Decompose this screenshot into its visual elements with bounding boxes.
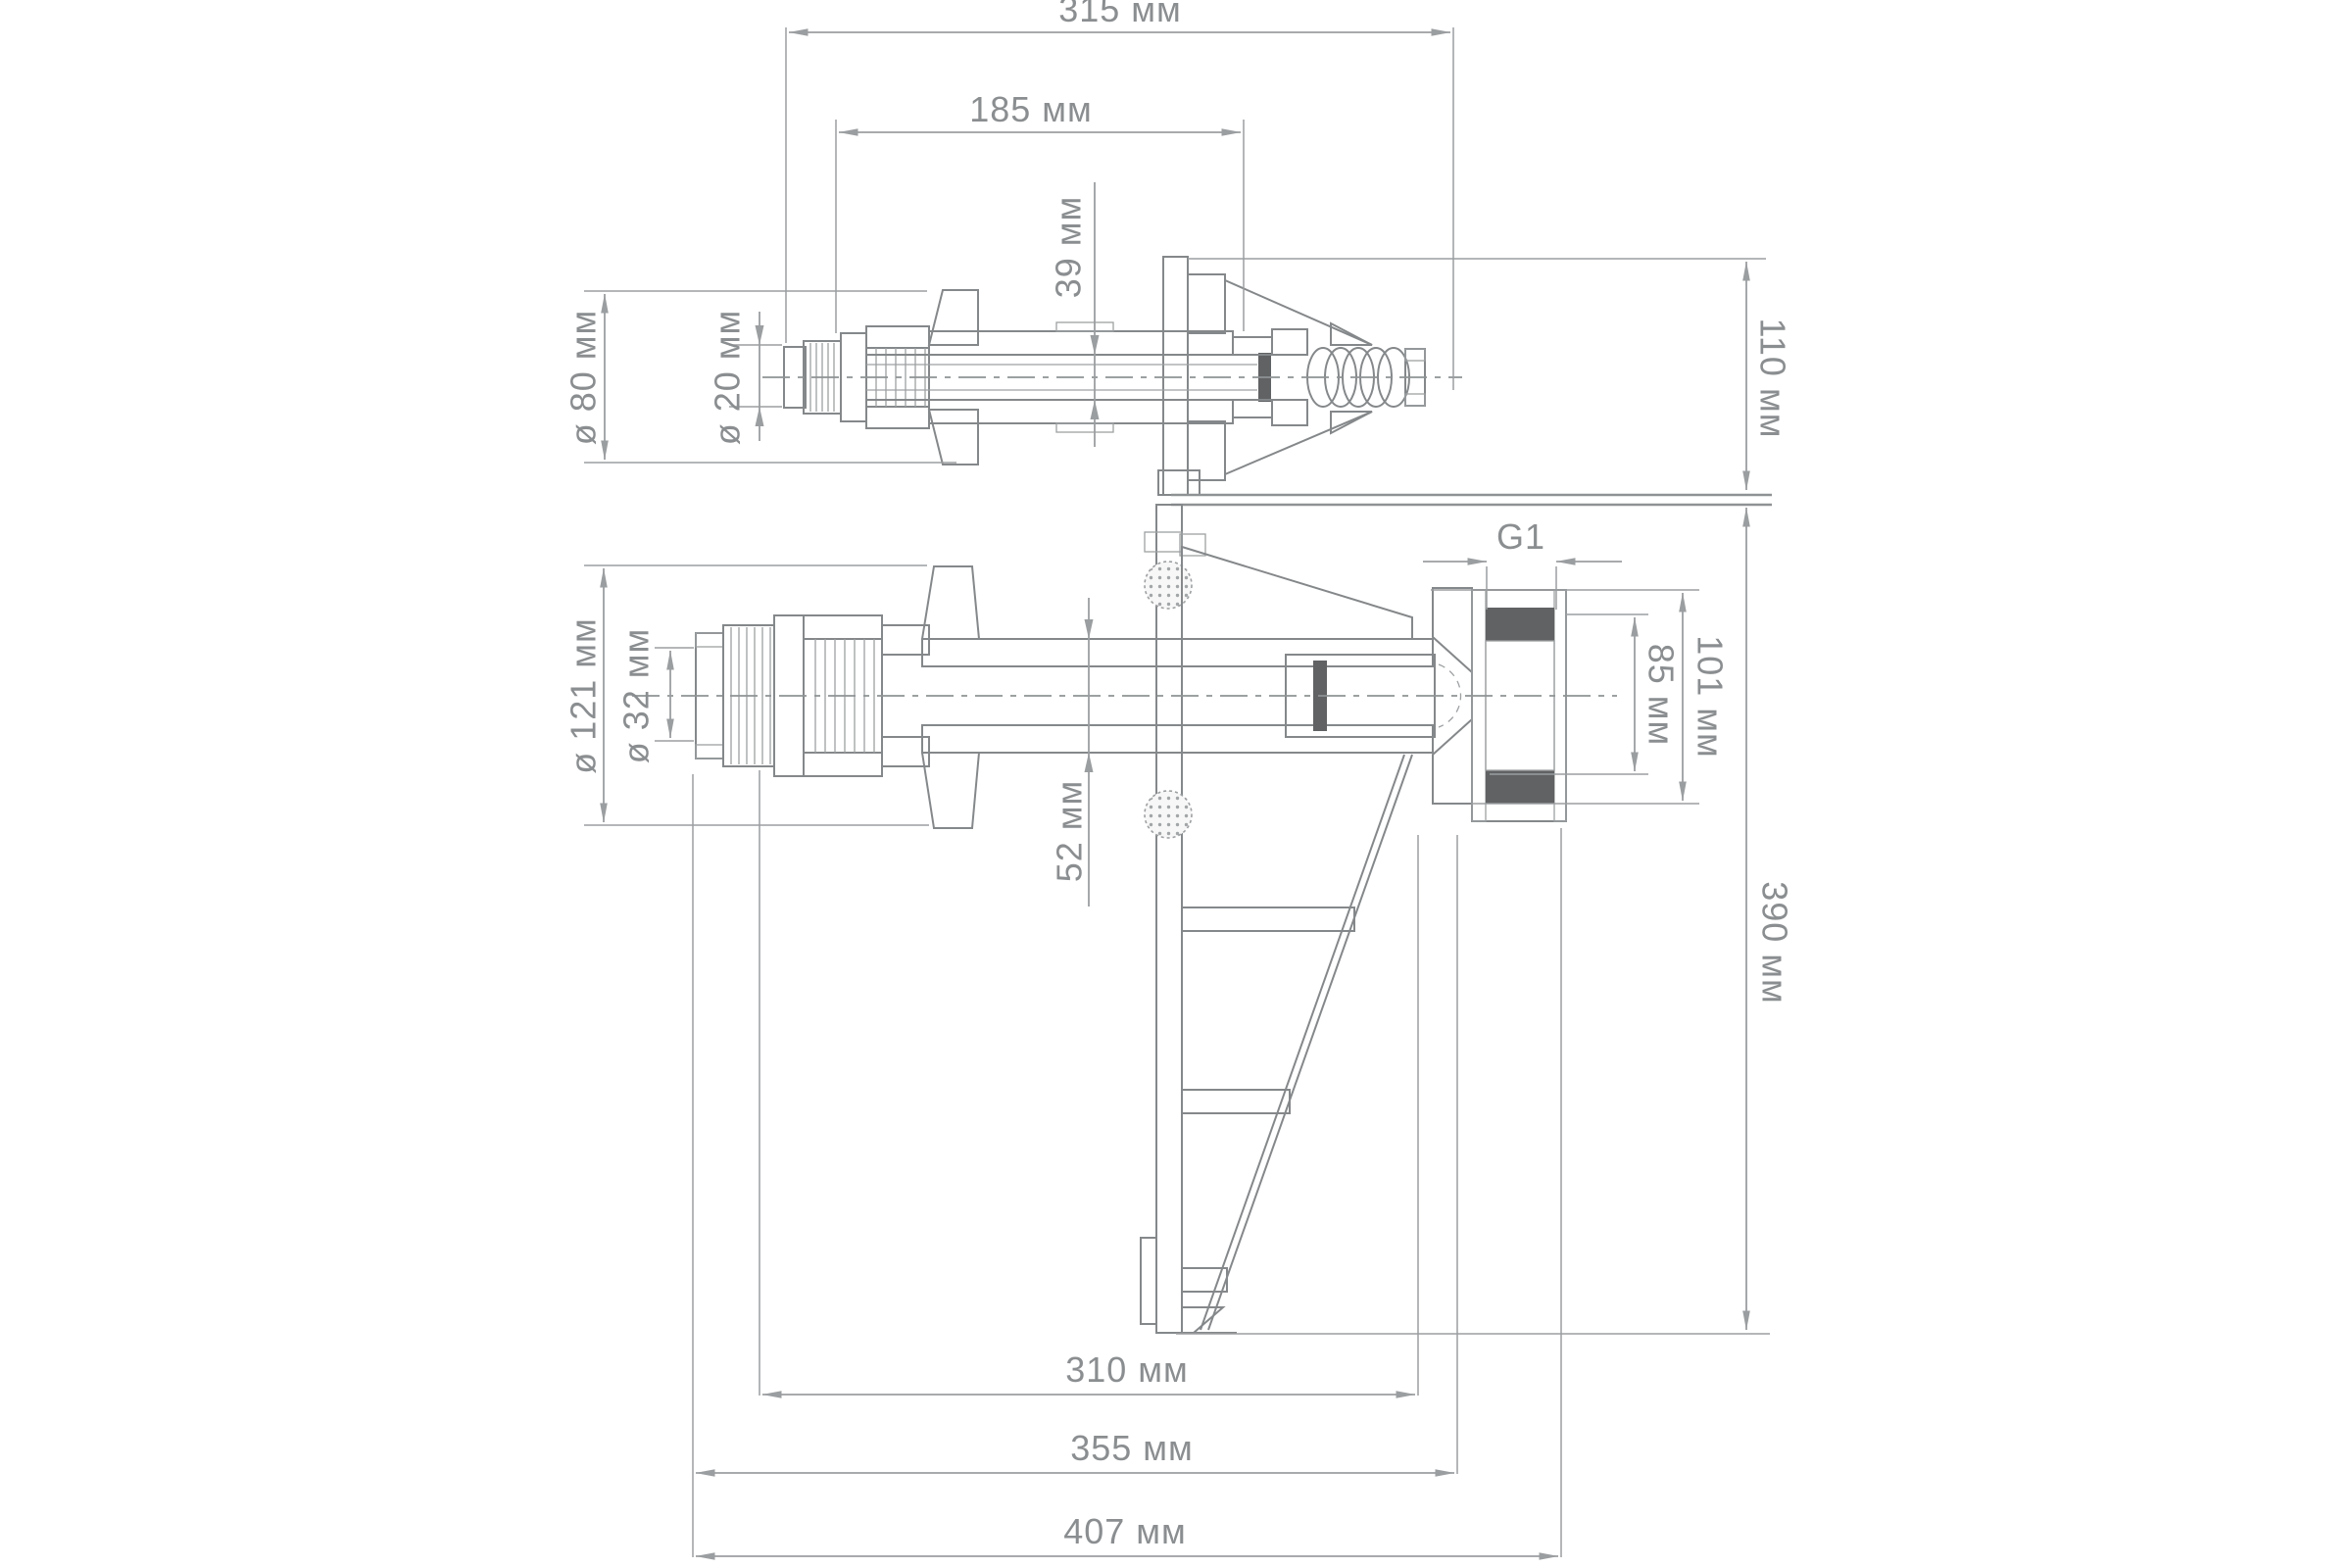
dim-label-310: 310 мм xyxy=(1065,1349,1189,1390)
clip-circle-top xyxy=(1145,562,1192,609)
dim-label-39: 39 мм xyxy=(1049,196,1089,299)
dim-label-315: 315 мм xyxy=(1058,0,1182,29)
dim-label-32: ø 32 мм xyxy=(616,628,657,764)
dim-label-g1: G1 xyxy=(1496,516,1545,557)
dim-label-80: ø 80 мм xyxy=(563,310,604,446)
dim-label-390: 390 мм xyxy=(1754,881,1794,1004)
dim-label-52: 52 мм xyxy=(1050,780,1090,883)
dim-label-355: 355 мм xyxy=(1070,1428,1194,1468)
dim-label-101: 101 мм xyxy=(1690,635,1730,759)
dim-label-121: ø 121 мм xyxy=(563,617,604,774)
union-seal-top xyxy=(1486,608,1554,641)
dim-label-407: 407 мм xyxy=(1063,1511,1187,1551)
clip-circle-bottom xyxy=(1145,791,1192,838)
dim-label-185: 185 мм xyxy=(969,89,1093,129)
dim-label-110: 110 мм xyxy=(1752,318,1792,439)
technical-drawing: 315 мм 185 мм 39 мм ø 80 мм ø 20 мм xyxy=(0,0,2352,1568)
dim-label-85: 85 мм xyxy=(1641,644,1681,747)
dim-label-20: ø 20 мм xyxy=(708,310,748,446)
union-seal-bottom xyxy=(1486,770,1554,804)
